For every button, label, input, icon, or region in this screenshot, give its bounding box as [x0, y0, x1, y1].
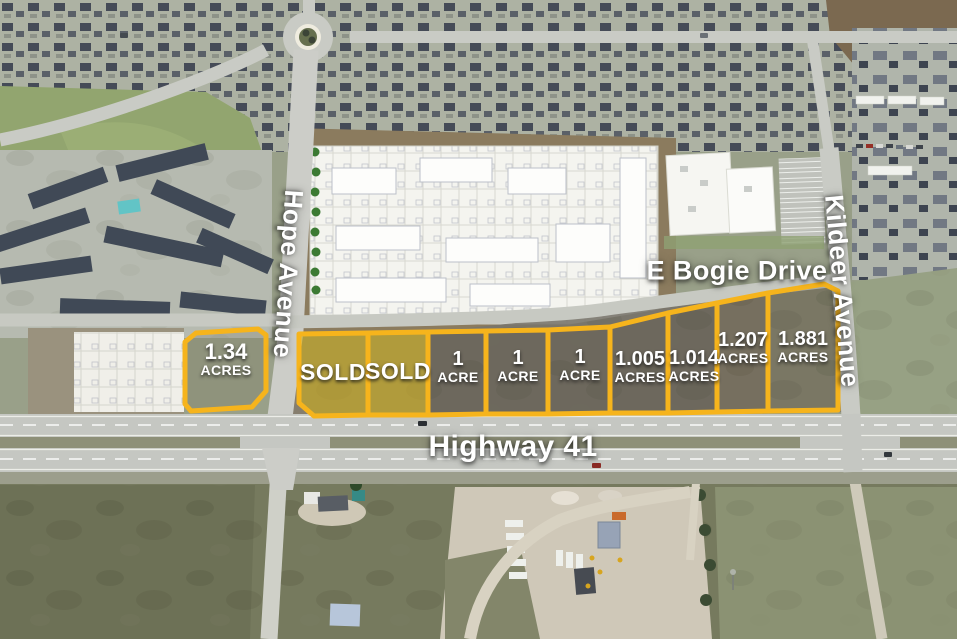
blue-roof-barn [330, 603, 361, 626]
parcel-label-1-acre-b: 1 ACRE [497, 348, 538, 384]
parcel-unit: ACRES [200, 363, 251, 378]
aerial-photo [0, 0, 957, 639]
road-label-e-bogie-drive: E Bogie Drive [647, 256, 828, 287]
blue-shed [598, 522, 620, 548]
parcel-label-sold-1: SOLD [300, 360, 366, 384]
parcel-size: 1.014 [668, 348, 719, 369]
parcel-size: 1 [559, 347, 600, 368]
parcel-size: 1.005 [614, 349, 665, 370]
parcel-size: 1.207 [717, 330, 768, 351]
apartment-complex [0, 143, 274, 338]
hope-avenue-south [269, 470, 279, 639]
road-label-highway-41: Highway 41 [428, 430, 597, 464]
parcel-unit: ACRE [497, 369, 538, 384]
west-parcel-block [28, 328, 184, 416]
east-neighborhood [850, 28, 957, 430]
parcel-label-1-34-acres: 1.34 ACRES [200, 340, 251, 378]
aerial-land-listing-map: Hope Avenue E Bogie Drive Kildeer Avenue… [0, 0, 957, 639]
parcel-size: 1 [437, 349, 478, 370]
parcel-label-1-014-acres: 1.014 ACRES [668, 348, 719, 384]
parcel-status: SOLD [300, 360, 366, 384]
parcel-size: 1.34 [200, 340, 251, 363]
parcel-label-1-acre-c: 1 ACRE [559, 347, 600, 383]
teal-shed [352, 490, 365, 501]
parcel-status: SOLD [365, 359, 431, 383]
parcel-label-1-207-acres: 1.207 ACRES [717, 330, 768, 366]
parcel-label-sold-2: SOLD [365, 359, 431, 383]
parcel-unit: ACRE [437, 370, 478, 385]
parcel-unit: ACRES [614, 370, 665, 385]
parcel-unit: ACRES [717, 351, 768, 366]
parcel-label-1-881-acres: 1.881 ACRES [777, 329, 828, 365]
parcel-size: 1.881 [777, 329, 828, 350]
parcel-unit: ACRE [559, 368, 600, 383]
parcel-size: 1 [497, 348, 538, 369]
parcel-label-1-005-acres: 1.005 ACRES [614, 349, 665, 385]
parcel-unit: ACRES [777, 350, 828, 365]
parcel-label-1-acre-a: 1 ACRE [437, 349, 478, 385]
parcel-unit: ACRES [668, 369, 719, 384]
